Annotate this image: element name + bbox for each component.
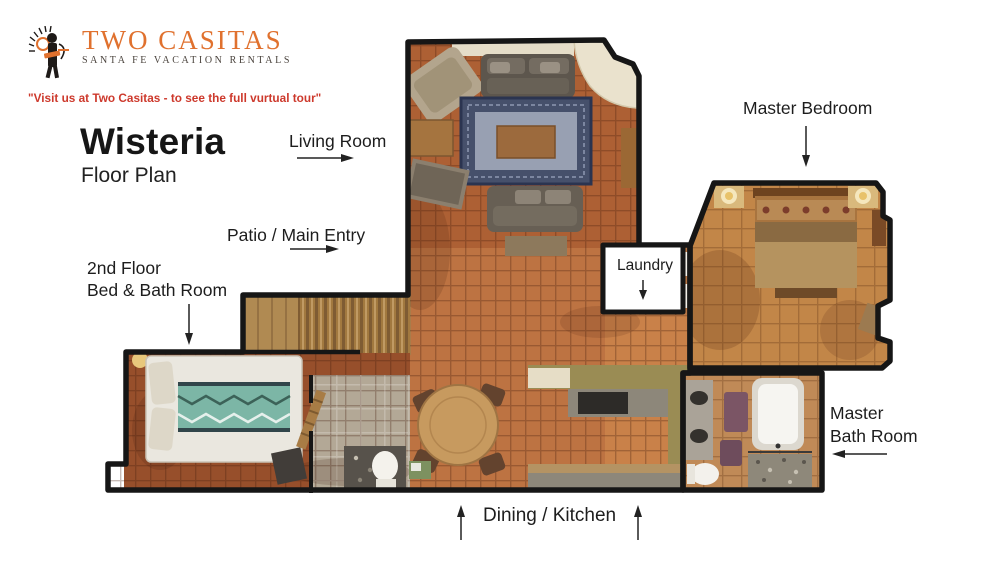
label-dining-kitchen: Dining / Kitchen [483, 505, 616, 527]
brand-header: Two Casitas SANTA FE VACATION RENTALS "V… [28, 26, 328, 105]
shower [748, 452, 812, 488]
master-bedroom-arrow-icon [800, 123, 812, 169]
master-bath-arrow-icon [830, 448, 890, 460]
living-room-arrow-icon [294, 152, 356, 164]
dining-kitchen-arrow-left-icon [455, 503, 467, 543]
master-bed [753, 188, 859, 298]
label-master-bath: Master Bath Room [830, 402, 918, 448]
nightstand-right [848, 186, 878, 208]
page-subtitle: Floor Plan [81, 164, 225, 188]
area-rug [461, 98, 591, 184]
label-second-floor-line2: Bed & Bath Room [87, 279, 227, 301]
vanity-sinks [685, 380, 713, 460]
patio-arrow-icon [287, 243, 341, 255]
side-table [407, 120, 453, 156]
laundry-arrow-icon [637, 278, 649, 302]
bath-rug-2 [720, 440, 742, 466]
coffee-table [497, 126, 555, 158]
label-living-room: Living Room [289, 130, 386, 152]
master-bathroom-area [681, 371, 824, 492]
dining-kitchen-arrow-right-icon [632, 503, 644, 543]
brand-tagline: "Visit us at Two Casitas - to see the fu… [28, 91, 328, 105]
title-block: Wisteria Floor Plan [80, 122, 225, 188]
kokopelli-logo-icon [28, 26, 76, 84]
brand-subtitle: SANTA FE VACATION RENTALS [82, 55, 292, 66]
bath-rug [724, 392, 748, 432]
label-master-bath-line1: Master [830, 402, 918, 425]
stove [578, 392, 628, 414]
label-second-floor: 2nd Floor Bed & Bath Room [87, 257, 227, 301]
guest-bed [146, 356, 302, 462]
master-toilet [691, 463, 719, 485]
brand-name: Two Casitas [82, 26, 292, 54]
sofa-top [481, 54, 575, 98]
label-master-bedroom: Master Bedroom [743, 97, 872, 119]
master-bedroom-area [680, 178, 895, 373]
nightstand-left [714, 186, 744, 208]
entry-door [621, 128, 637, 188]
bathtub [752, 378, 804, 450]
dining-table-set [409, 382, 506, 479]
floorplan-page: Two Casitas SANTA FE VACATION RENTALS "V… [0, 0, 1000, 563]
label-second-floor-line1: 2nd Floor [87, 257, 227, 279]
second-floor-arrow-icon [183, 301, 195, 347]
label-master-bath-line2: Bath Room [830, 425, 918, 448]
label-laundry: Laundry [617, 255, 673, 277]
patio-stairs [244, 296, 410, 353]
guest-toilet [372, 451, 398, 481]
page-title: Wisteria [80, 122, 225, 162]
